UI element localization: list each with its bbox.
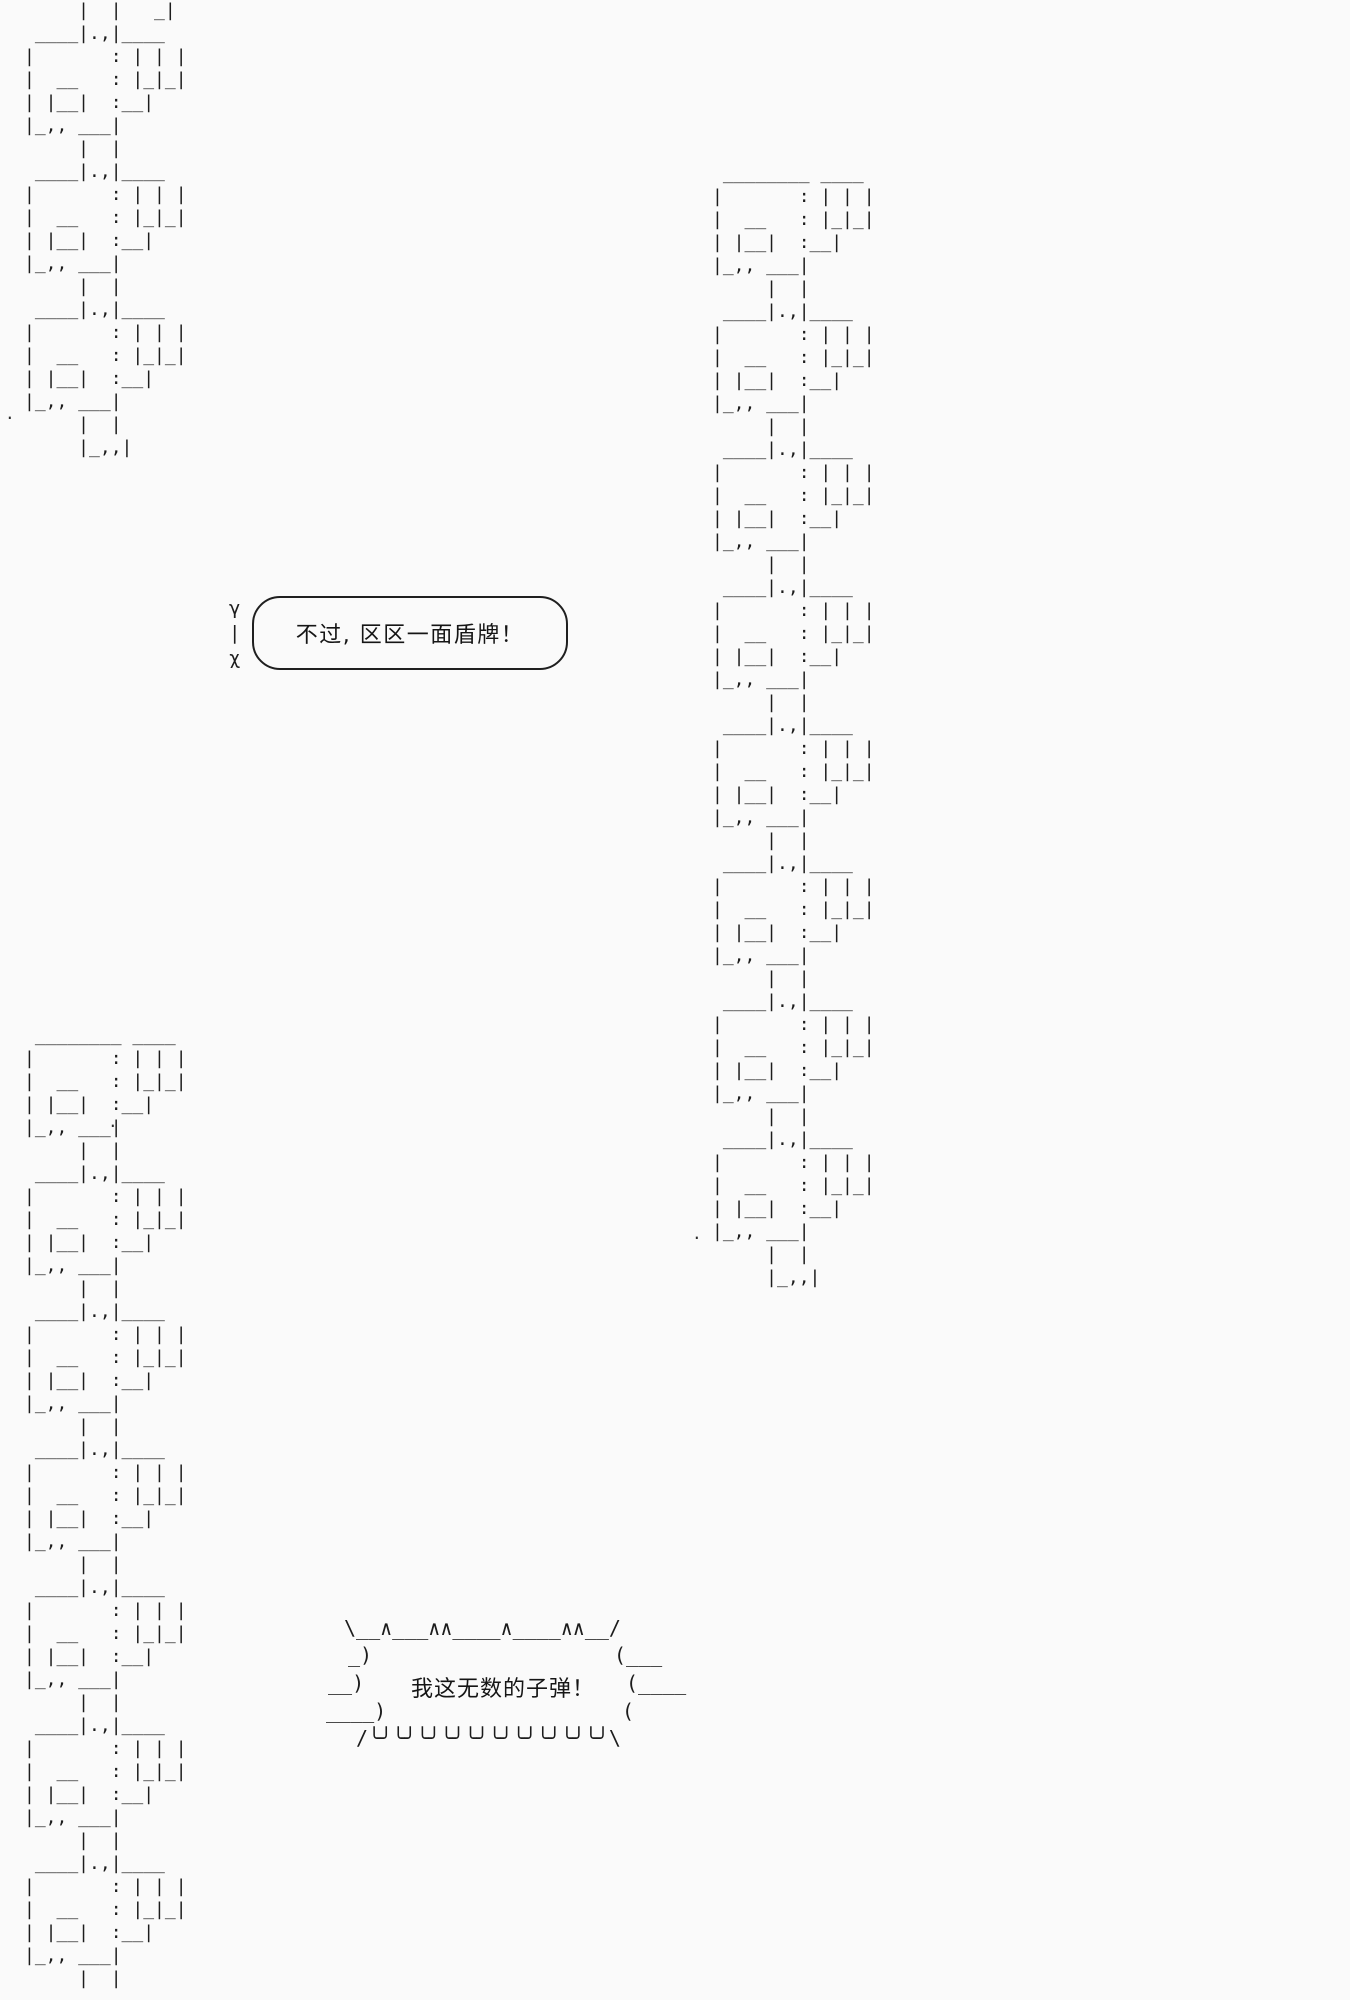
ascii-chain-right: ________ ____ | : | | | | __ : |_|_| | |…: [712, 162, 875, 1289]
speech-bubble-calm-text: 不过, 区区一面盾牌！: [296, 617, 525, 649]
shout-bubble-left-edge: _): [348, 1641, 372, 1669]
shout-bubble-top-spikes: \__∧___∧∧____∧____∧∧__/: [344, 1614, 621, 1642]
speech-bubble-border: 不过, 区区一面盾牌！: [252, 596, 568, 670]
aa-comic-page: { "page": { "background": "#fafafa", "in…: [0, 0, 1350, 2000]
shout-bubble-right-edge: (___: [614, 1641, 662, 1669]
shout-bubble-left-edge: ____): [326, 1697, 386, 1725]
ascii-chain-top-left: | | | | _| ____|.,|____ | : | | | | __ :…: [24, 0, 187, 459]
shout-bubble-right-edge: (: [622, 1697, 634, 1725]
stray-ink-dot: .: [108, 1112, 118, 1131]
stray-ink-dot: .: [5, 404, 15, 423]
shout-bubble-bottom-scallops: /╰╯╰╯╰╯╰╯╰╯╰╯╰╯╰╯╰╯╰╯\: [356, 1724, 621, 1752]
stray-ink-dot: .: [692, 1224, 702, 1243]
speech-bubble-shout: \__∧___∧∧____∧____∧∧__/ _) (___ __) (___…: [322, 1614, 684, 1764]
speech-bubble-tail-icon: γ | χ: [229, 596, 240, 671]
ascii-chain-bottom-left: ________ ____ | : | | | | __ : |_|_| | |…: [24, 1024, 187, 1990]
speech-bubble-calm: γ | χ 不过, 区区一面盾牌！: [228, 594, 574, 674]
